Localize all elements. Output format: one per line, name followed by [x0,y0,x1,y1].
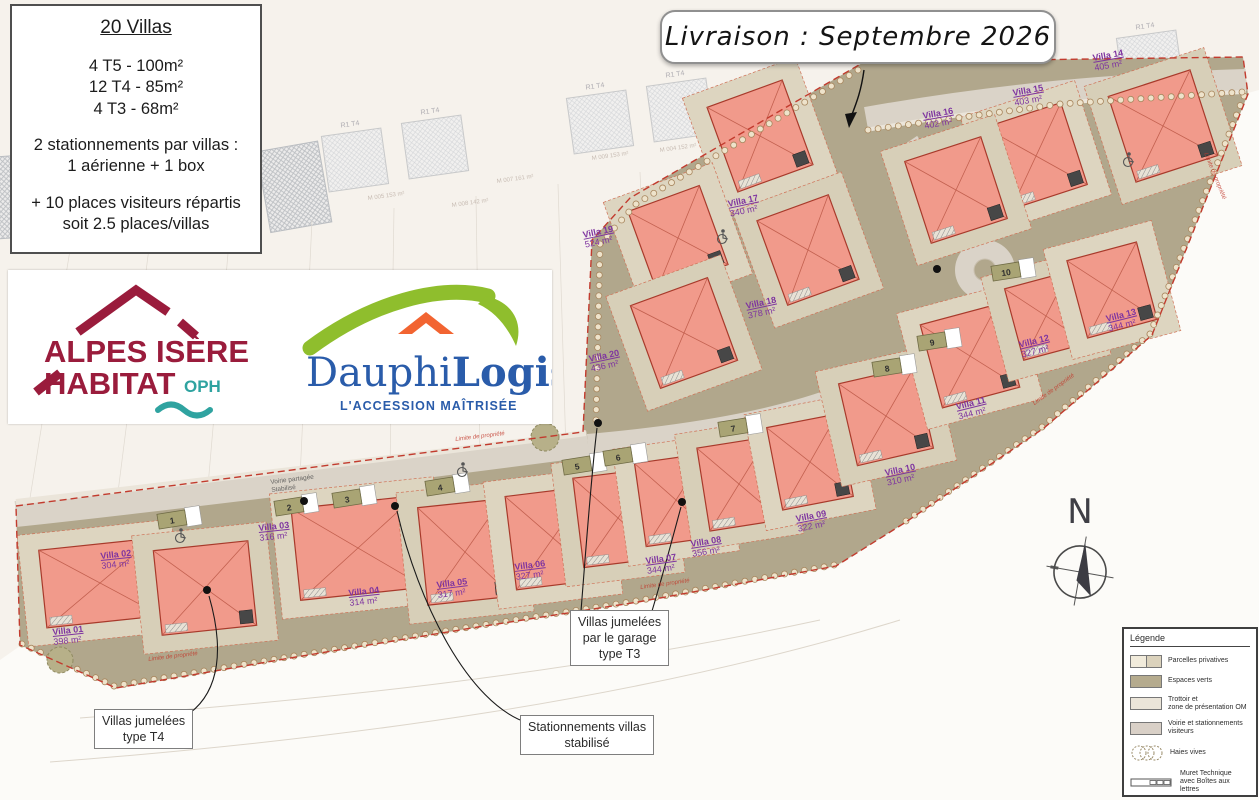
hedge-dot [966,113,972,119]
svg-text:DauphiLogis: DauphiLogis [306,349,552,396]
hedge-dot [1158,94,1164,100]
legend-box: Légende Parcelles privativesEspaces vert… [1122,627,1258,797]
north-label: N [1040,492,1120,532]
hedge-dot [1209,91,1215,97]
site-plan-canvas: R1 T4R1 T4R1 T4R1 T4R1 T4R1 T4R1 T4R1 T4… [0,0,1259,800]
hedge-dot [596,282,602,288]
hedge-dot [713,153,719,159]
hedge-dot [633,201,639,207]
hedge-dot [996,109,1002,115]
legend-title: Légende [1130,632,1250,647]
hedge-dot [1108,98,1114,104]
orange-roof-icon [398,312,454,334]
hedge-dot [775,115,781,121]
hedge-dot [1037,104,1043,110]
hedge-dot [1178,93,1184,99]
hedge-dot [619,217,625,223]
hedge-dot [1138,96,1144,102]
hedge-dot [1219,90,1225,96]
villa-label: Villa 03316 m² [258,521,291,544]
hedge-dot [828,83,834,89]
hedge-dot [766,121,772,127]
street-light-dot [391,502,399,510]
hedge-dot [740,137,746,143]
hedge-dot [916,120,922,126]
street-light-dot [594,419,602,427]
hedge-dot [493,620,499,626]
hedge-dot [686,169,692,175]
svg-text:OPH: OPH [184,377,221,396]
hedge-dot [1158,302,1164,308]
legend-label: Muret Techniqueavec Boîtes aux lettres [1180,770,1250,795]
hedge-dot [732,580,738,586]
parcelles-swatch [1130,655,1162,668]
street-light-dot [300,497,308,505]
alpes-isere-habitat-logo: ALPES ISÈRE HABITAT OPH [8,270,280,424]
hedge-dot [1077,100,1083,106]
legend-item-muret: Muret Techniqueavec Boîtes aux lettres [1130,770,1250,795]
hedge-dot [837,78,843,84]
hedge-dot [1155,312,1161,318]
hedge-dot [596,293,602,299]
hedge-dot [1057,101,1063,107]
hedge-dot [597,251,603,257]
neighbor-parcel-label: M 005 153 m² [367,191,405,202]
hedge-dot [846,72,852,78]
hedge-dot [483,621,489,627]
svg-text:L'ACCESSION MAÎTRISÉE: L'ACCESSION MAÎTRISÉE [340,398,517,413]
trottoir-swatch [1130,697,1162,710]
hedge-dot [793,105,799,111]
neighbor-building: R1 T4 [565,79,634,154]
callout-line: stabilisé [528,735,646,751]
hedge-dot [603,603,609,609]
hedge-dot [342,645,348,651]
muret-icon [1130,776,1174,788]
hedge-dot [748,131,754,137]
hedge-dot [802,99,808,105]
street-light-dot [203,586,211,594]
logo-strip: ALPES ISÈRE HABITAT OPH DauphiLogis L'AC… [8,270,552,424]
neighbor-parcel-label: M 007 161 m² [496,174,534,185]
callout-line: Villas jumelées [102,713,185,729]
villa-label: Villa 06327 m² [514,559,547,582]
svg-text:R1 T4: R1 T4 [420,107,440,117]
hedge-dot [1203,188,1209,194]
hedge-dot [831,562,837,568]
hedge-dot [626,209,632,215]
callout-line: type T3 [578,646,661,662]
hedge-dot [1067,100,1073,106]
hedge-dot [722,147,728,153]
hedge-dot [352,643,358,649]
hedge-dot [593,407,599,413]
hedge-dot [596,303,602,309]
hedge-dot [1118,97,1124,103]
hedge-dot [1215,160,1221,166]
hedge-dot [885,124,891,130]
hedge-dot [865,127,871,133]
hedge-dot [331,646,337,652]
legend-label: Trottoir etzone de présentation OM [1168,696,1247,713]
hedge-dot [642,196,648,202]
legend-item-voirie: Voirie et stationnementsvisiteurs [1130,720,1250,737]
hedge-dot [731,142,737,148]
green-swoosh-icon [310,292,488,348]
hedge-dot [593,396,599,402]
parking-info: 2 stationnements par villas : 1 aérienne… [16,135,256,178]
hedge-dot [231,663,237,669]
hedge-dot [1128,96,1134,102]
hedge-dot [1097,98,1103,104]
program-summary-box: 20 Villas 4 T5 - 100m² 12 T4 - 85m² 4 T3… [10,4,262,254]
tree-icon [47,647,73,673]
hedge-dot [594,386,600,392]
hedge-dot [1229,90,1235,96]
hedge-dot [362,641,368,647]
hedge-dot [660,185,666,191]
svg-text:HABITAT: HABITAT [44,366,175,401]
hedge-dot [473,623,479,629]
hedge-dot [704,158,710,164]
callout-line: Stationnements villas [528,719,646,735]
compass-icon [1042,532,1118,608]
hedge-dot [633,598,639,604]
neighbor-parcel-label: M 004 152 m² [659,143,697,154]
hedge-dot [1168,94,1174,100]
delivery-text: Livraison : Septembre 2026 [665,22,1051,52]
hedge-dot [1148,95,1154,101]
hedge-dot [595,334,601,340]
hedge-dot [1054,411,1060,417]
villa-label: Villa 05317 m² [436,577,469,600]
villa-label: Villa 04314 m² [348,586,381,609]
hedge-dot [596,272,602,278]
hedge-dot [1047,102,1053,108]
north-indicator: N [1040,492,1120,613]
hedge-dot [623,600,629,606]
neighbor-building: R1 T4 [320,117,389,192]
hedge-dot [722,582,728,588]
hedge-dot [695,163,701,169]
neighbor-parcel-label: M 008 142 m² [451,198,489,209]
haies-icon [1130,744,1164,762]
hedge-dot [595,313,601,319]
hedge-dot [757,126,763,132]
hedge-dot [594,376,600,382]
hedge-dot [811,94,817,100]
program-title: 20 Villas [16,16,256,41]
hedge-dot [651,190,657,196]
legend-item-trottoir: Trottoir etzone de présentation OM [1130,696,1250,713]
legend-item-parcelles: Parcelles privatives [1130,655,1250,668]
hedge-dot [976,112,982,118]
villa-label: Villa 01398 m² [52,625,85,648]
existing-building [257,141,332,233]
hedge-dot [712,584,718,590]
hedge-dot [784,110,790,116]
hedge-dot [1199,92,1205,98]
hedge-dot [321,648,327,654]
callout-stat: Stationnements villasstabilisé [520,715,654,755]
callout-line: par le garage [578,630,661,646]
hedge-dot [956,115,962,121]
hedge-dot [1006,108,1012,114]
espaces-swatch [1130,675,1162,688]
neighbor-building: R1 T4 [400,104,469,179]
hedge-dot [503,618,509,624]
legend-label: Espaces verts [1168,677,1212,685]
legend-item-haies: Haies vives [1130,744,1250,762]
hedge-dot [669,180,675,186]
hedge-dot [895,123,901,129]
legend-label: Voirie et stationnementsvisiteurs [1168,720,1243,737]
callout-t4: Villas jumeléestype T4 [94,709,193,749]
legend-label: Haies vives [1170,749,1206,757]
hedge-dot [1188,92,1194,98]
street-light-dot [678,498,686,506]
hedge-dot [875,126,881,132]
hedge-dot [221,665,227,671]
hedge-dot [677,174,683,180]
unit-mix: 4 T5 - 100m² 12 T4 - 85m² 4 T3 - 68m² [16,56,256,120]
dauphilogis-logo: DauphiLogis L'ACCESSION MAÎTRISÉE [280,270,552,424]
svg-text:10: 10 [1001,267,1012,278]
legend-rows: Parcelles privativesEspaces vertsTrottoi… [1130,655,1250,795]
hedge-dot [1087,99,1093,105]
legend-item-espaces: Espaces verts [1130,675,1250,688]
hedge-dot [905,122,911,128]
neighbor-parcel-label: M 009 153 m² [591,151,629,162]
villa-label: Villa 02304 m² [100,549,133,572]
svg-text:R1 T4: R1 T4 [340,120,360,130]
hedge-dot [595,345,601,351]
callout-line: type T4 [102,729,185,745]
legend-label: Parcelles privatives [1168,657,1228,665]
svg-text:R1 T4: R1 T4 [1135,22,1155,32]
callout-t3: Villas jumeléespar le garagetype T3 [570,610,669,666]
hedge-dot [597,262,603,268]
visitor-parking-info: + 10 places visiteurs répartis soit 2.5 … [16,193,256,236]
delivery-banner: Livraison : Septembre 2026 [660,10,1056,64]
hedge-dot [1239,89,1245,95]
svg-text:ALPES ISÈRE: ALPES ISÈRE [44,334,249,369]
hedge-dot [595,324,601,330]
svg-text:R1 T4: R1 T4 [585,82,605,92]
callout-line: Villas jumelées [578,614,661,630]
voirie-swatch [1130,722,1162,735]
hedge-dot [742,578,748,584]
hedge-dot [613,601,619,607]
svg-text:R1 T4: R1 T4 [665,70,685,80]
hedge-dot [986,111,992,117]
street-light-dot [933,265,941,273]
hedge-dot [819,88,825,94]
hedge-dot [855,67,861,73]
